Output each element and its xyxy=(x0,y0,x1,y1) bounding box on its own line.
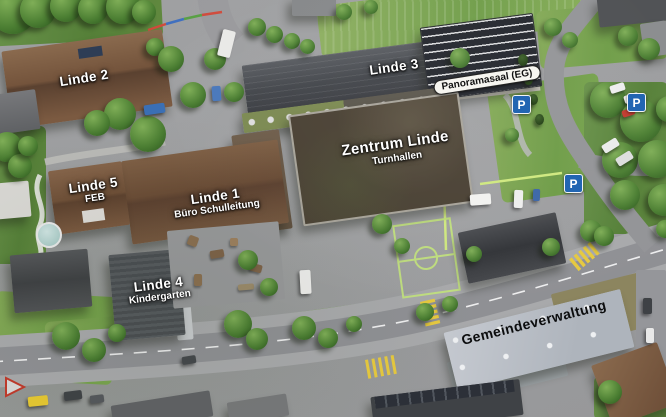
parking-icon-2-letter: P xyxy=(632,96,640,110)
tree xyxy=(372,214,392,234)
car-yellow xyxy=(28,395,49,407)
hedge-bush xyxy=(248,18,266,36)
tree xyxy=(260,278,278,296)
building-left-top xyxy=(0,89,41,135)
parking-icon-1-letter: P xyxy=(517,98,525,112)
bush xyxy=(364,0,378,14)
tree xyxy=(158,46,184,72)
van-white xyxy=(470,193,492,205)
linde5-dormer xyxy=(82,208,105,223)
building-top-shed xyxy=(292,0,336,16)
tree xyxy=(450,48,470,68)
tree xyxy=(130,116,166,152)
aerial-map: Linde 2 Linde 3 Panoramasaal (EG) Zentru… xyxy=(0,0,666,417)
hedge-bush xyxy=(300,39,315,54)
play-structure xyxy=(230,238,238,246)
tree xyxy=(610,180,640,210)
tree xyxy=(84,110,110,136)
tree xyxy=(638,38,660,60)
bush xyxy=(544,18,562,36)
car-dark xyxy=(90,394,105,404)
garden-pool xyxy=(36,222,62,248)
tree xyxy=(594,226,614,246)
tree xyxy=(318,328,338,348)
parking-icon-2: P xyxy=(627,93,646,112)
tree xyxy=(466,246,482,262)
hedge-bush xyxy=(284,33,300,49)
hedge-bush xyxy=(266,26,283,43)
tree xyxy=(18,136,38,156)
building-left-white xyxy=(0,181,32,220)
car-white xyxy=(514,190,524,208)
cypress-tree xyxy=(535,114,544,125)
bush xyxy=(505,128,519,142)
tree xyxy=(346,316,362,332)
tree xyxy=(108,324,126,342)
tree xyxy=(8,154,32,178)
solar-panel-linde2 xyxy=(78,46,103,59)
bush xyxy=(336,4,352,20)
tree xyxy=(82,338,106,362)
tree xyxy=(246,328,268,350)
play-structure xyxy=(194,274,202,286)
tree xyxy=(394,238,410,254)
bush xyxy=(562,32,578,48)
tree xyxy=(180,82,206,108)
truck-white xyxy=(299,270,311,295)
tree xyxy=(224,82,244,102)
tree xyxy=(416,303,434,321)
car-blue xyxy=(211,86,221,102)
tree xyxy=(442,296,458,312)
green-guide-line-1 xyxy=(480,173,562,184)
tree xyxy=(52,322,80,350)
tree xyxy=(132,0,156,24)
building-left-dark-house xyxy=(10,249,93,314)
parking-icon-1: P xyxy=(512,95,531,114)
parking-icon-3: P xyxy=(564,174,583,193)
parking-icon-3-letter: P xyxy=(569,177,577,191)
tree xyxy=(618,26,638,46)
tree xyxy=(292,316,316,340)
car-blue xyxy=(533,189,540,201)
cypress-tree xyxy=(518,54,528,66)
tree xyxy=(598,380,622,404)
car-white xyxy=(646,328,654,343)
tree xyxy=(542,238,560,256)
car-dark xyxy=(643,298,652,314)
crosswalk-driveway xyxy=(365,355,397,379)
tree xyxy=(238,250,258,270)
